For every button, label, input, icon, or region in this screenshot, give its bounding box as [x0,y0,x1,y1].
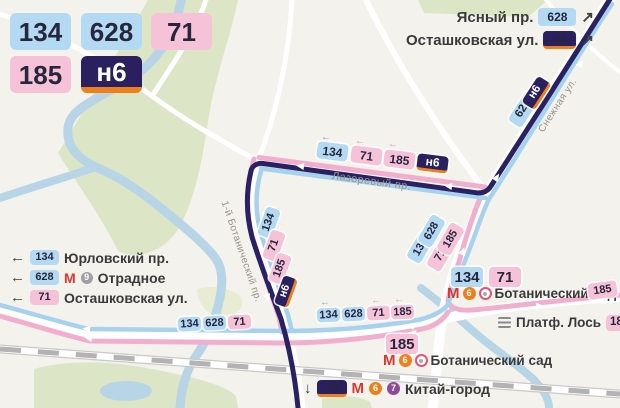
arrow-left-icon: ← [10,269,25,286]
arrow-left-icon: ← [10,249,25,266]
route-badge-185: 185 [383,149,416,170]
route-badge-n6: н6 [317,380,347,397]
suburban-train-icon [498,317,511,328]
metro-line6-icon: 6 [399,354,412,367]
metro-logo-icon: М [64,271,76,285]
destination-name: Ясный пр. [457,9,534,26]
destination-name: Осташковская ул. [64,290,188,306]
route-badge-134: 134 [316,141,349,162]
destination-name: Юрловский пр. [64,250,169,266]
metro-logo-icon: М [383,353,396,368]
arrow-up-right-icon: ↗ [581,8,594,26]
stop-name: Ботанический сад [431,353,553,368]
route-badge-n6: н6 [543,31,576,49]
legend-badge-185: 185 [10,56,71,93]
route-badge-71: 71 [30,290,59,305]
route-badge-71: 71 [367,305,391,320]
destination-yasny: Ясный пр. 628 ↗ [457,8,594,26]
route-badge-71: 71 [350,145,383,166]
route-badge-71: 71 [228,314,252,329]
destination-ostashkovskaya-ne: Осташковская ул. н6 ↗ [406,31,594,49]
stop-name: Китай-город [405,381,490,397]
destination-name: Осташковская ул. [406,32,538,49]
stop-botanichesky-south: М 6 Ботанический сад [383,353,552,368]
destination-otradnoye: ← 628 М 9 Отрадное [10,269,165,286]
route-badge-n6: н6 [416,153,449,174]
metro-logo-icon: М [447,286,460,301]
metro-line9-icon: 9 [81,272,93,284]
direction-arrow-icon: ← [371,296,382,307]
route-badge-628: 628 [342,306,366,321]
route-badge-185: 185 [386,334,418,354]
destination-kitay-gorod: ↓ н6 М 6 7 Китай-город [304,380,490,397]
arrow-left-icon: ← [10,289,25,306]
metro-line6-icon: 6 [369,382,382,395]
route-badge-628: 628 [30,270,59,285]
legend-badge-628: 628 [81,13,142,50]
direction-arrow-icon: ← [394,295,405,306]
arrow-down-icon: ↓ [304,380,312,397]
mcc-line-icon [415,354,428,367]
transit-map: 134 628 71 185 н6 Ясный пр. 628 ↗ Осташк… [0,0,620,408]
route-badge-134: 134 [30,250,59,265]
destination-name: Отрадное [98,270,166,286]
route-badge-134: 134 [178,316,202,331]
pond [100,381,152,401]
stop-name: Платф. Лось [516,315,601,330]
route-badge-71: 71 [489,267,521,287]
route-badge-134: 134 [317,307,341,322]
legend-badge-134: 134 [10,13,71,50]
metro-logo-icon: М [352,381,365,396]
route-badge-185: 185 [606,315,620,331]
destination-yurlovsky: ← 134 Юрловский пр. [10,249,169,266]
metro-line6-icon: 6 [463,287,476,300]
arrow-up-right-icon: ↗ [581,31,594,49]
route-badge-185: 185 [391,304,415,319]
mcc-line-icon [479,287,492,300]
route-badge-134: 134 [451,267,483,287]
destination-ostashkovskaya: ← 71 Осташковская ул. [10,289,188,306]
legend-badge-71: 71 [151,13,212,50]
legend-badge-n6: н6 [81,56,142,93]
route-badge-628: 628 [538,8,576,26]
metro-line7-icon: 7 [387,382,400,395]
route-n6-line [247,0,612,408]
direction-arrow-icon: ← [320,298,331,309]
stop-platf-los: Платф. Лось 185 → [498,314,620,331]
route-badge-628: 628 [203,315,227,330]
